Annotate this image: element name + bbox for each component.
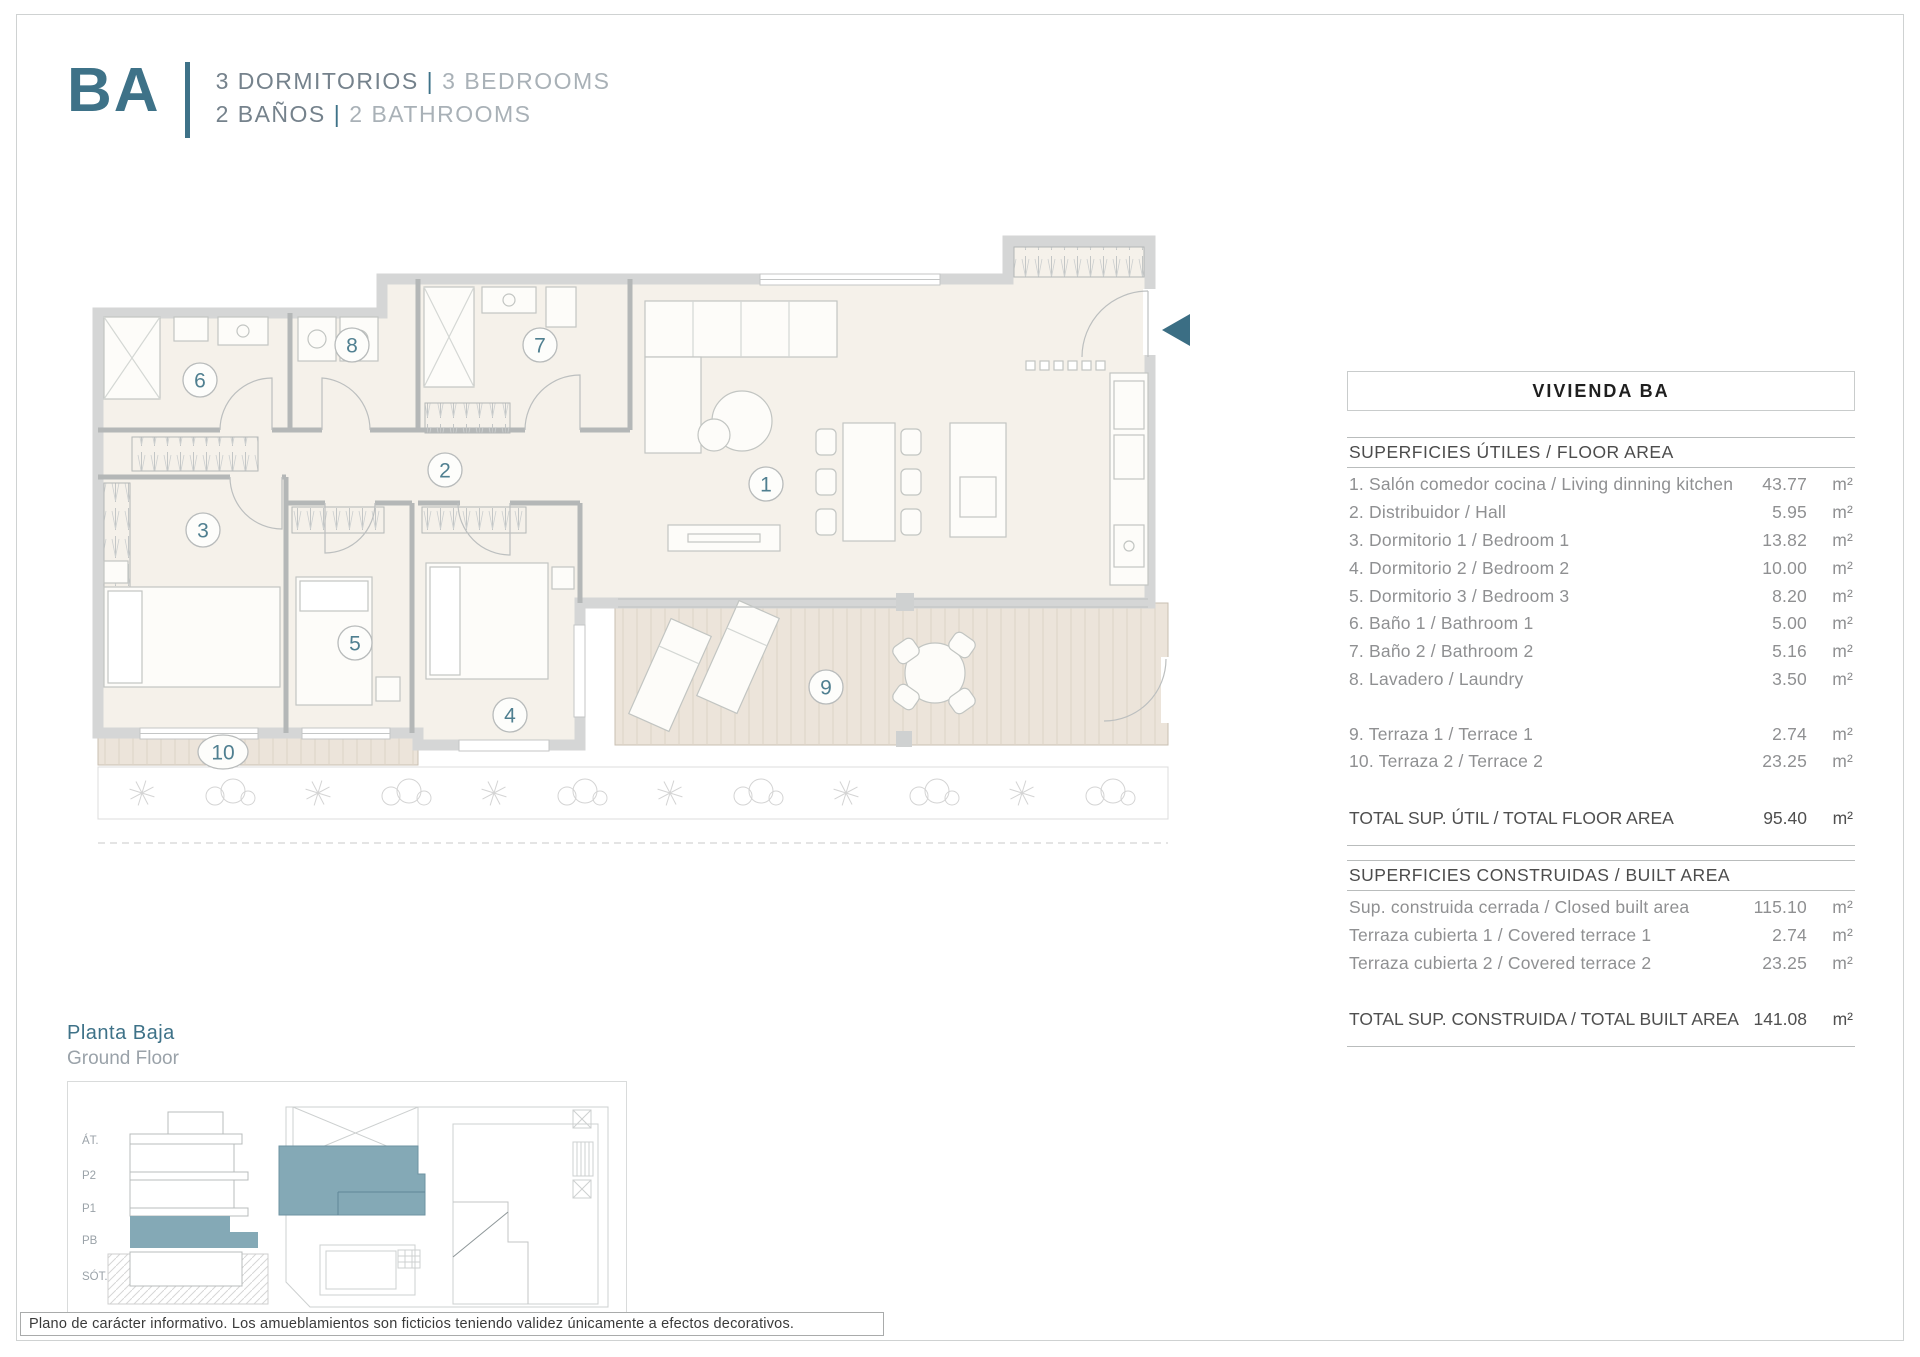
room-badge-7: 7 <box>523 328 557 362</box>
svg-text:PB: PB <box>82 1235 98 1247</box>
room-badge-5: 5 <box>338 626 372 660</box>
section-diagram: ÁT.P2P1PBSÓT. <box>82 1112 268 1304</box>
pipe-separator: | <box>326 101 349 127</box>
floor-label-en: Ground Floor <box>67 1048 179 1070</box>
area-row: 8. Lavadero / Laundry3.50m² <box>1347 665 1855 693</box>
header-divider <box>185 62 190 138</box>
svg-text:ÁT.: ÁT. <box>82 1134 99 1147</box>
total-floor-area-row: TOTAL SUP. ÚTIL / TOTAL FLOOR AREA 95.40… <box>1347 806 1855 831</box>
area-row: Terraza cubierta 2 / Covered terrace 223… <box>1347 949 1855 977</box>
svg-text:4: 4 <box>504 705 516 728</box>
floor-plan: 12345678910 <box>70 225 1190 855</box>
floor-plan-svg: 12345678910 <box>70 225 1190 855</box>
garden-strip <box>98 767 1168 843</box>
area-table-panel: VIVIENDA BA SUPERFICIES ÚTILES / FLOOR A… <box>1347 371 1855 1047</box>
room-badge-8: 8 <box>335 328 369 362</box>
terrace-9-deck <box>615 603 1168 745</box>
terrace-rows: 9. Terraza 1 / Terrace 12.74m²10. Terraz… <box>1347 717 1855 776</box>
total-floor-label: TOTAL SUP. ÚTIL / TOTAL FLOOR AREA <box>1349 808 1741 829</box>
svg-text:9: 9 <box>820 677 832 700</box>
location-diagram-box: ÁT.P2P1PBSÓT. <box>67 1081 627 1318</box>
section-divider <box>1347 1046 1855 1047</box>
svg-text:5: 5 <box>349 633 361 656</box>
svg-text:3: 3 <box>197 520 209 543</box>
location-diagram-svg: ÁT.P2P1PBSÓT. <box>68 1082 626 1317</box>
entrance-arrow <box>1162 310 1190 350</box>
terrace-10-deck <box>98 737 418 765</box>
disclaimer: Plano de carácter informativo. Los amueb… <box>20 1312 884 1336</box>
total-built-unit: m² <box>1807 1009 1853 1030</box>
svg-text:6: 6 <box>194 370 206 393</box>
room-badge-3: 3 <box>186 513 220 547</box>
area-row: 1. Salón comedor cocina / Living dinning… <box>1347 471 1855 499</box>
built-area-rows: Sup. construida cerrada / Closed built a… <box>1347 891 1855 977</box>
floor-area-heading: SUPERFICIES ÚTILES / FLOOR AREA <box>1347 437 1855 468</box>
rows-gap <box>1347 693 1855 717</box>
room-badge-10: 10 <box>198 735 248 769</box>
total-built-area-row: TOTAL SUP. CONSTRUIDA / TOTAL BUILT AREA… <box>1347 1007 1855 1032</box>
svg-text:1: 1 <box>760 474 772 497</box>
room-badge-9: 9 <box>809 670 843 704</box>
plan-sheet-page: BA 3 DORMITORIOS|3 BEDROOMS 2 BAÑOS|2 BA… <box>0 0 1920 1357</box>
area-row: 9. Terraza 1 / Terrace 12.74m² <box>1347 720 1855 748</box>
svg-text:8: 8 <box>346 335 358 358</box>
pipe-separator: | <box>419 68 442 94</box>
svg-text:P2: P2 <box>82 1170 96 1182</box>
area-row: 10. Terraza 2 / Terrace 223.25m² <box>1347 748 1855 776</box>
area-row: 4. Dormitorio 2 / Bedroom 210.00m² <box>1347 554 1855 582</box>
area-row: 2. Distribuidor / Hall5.95m² <box>1347 499 1855 527</box>
room-badge-6: 6 <box>183 363 217 397</box>
bathrooms-line: 2 BAÑOS|2 BATHROOMS <box>216 101 611 128</box>
area-row: 5. Dormitorio 3 / Bedroom 38.20m² <box>1347 582 1855 610</box>
area-row: 6. Baño 1 / Bathroom 15.00m² <box>1347 610 1855 638</box>
panel-title: VIVIENDA BA <box>1347 371 1855 411</box>
built-area-heading: SUPERFICIES CONSTRUIDAS / BUILT AREA <box>1347 860 1855 891</box>
siteplan-diagram <box>279 1107 608 1307</box>
svg-text:2: 2 <box>439 460 451 483</box>
bedrooms-line: 3 DORMITORIOS|3 BEDROOMS <box>216 68 611 95</box>
area-row: 3. Dormitorio 1 / Bedroom 113.82m² <box>1347 527 1855 555</box>
total-floor-value: 95.40 <box>1741 808 1807 829</box>
svg-text:P1: P1 <box>82 1203 96 1215</box>
floor-label-es: Planta Baja <box>67 1022 179 1045</box>
bedrooms-es: 3 DORMITORIOS <box>216 68 419 94</box>
total-built-label: TOTAL SUP. CONSTRUIDA / TOTAL BUILT AREA <box>1349 1009 1741 1030</box>
area-row: 7. Baño 2 / Bathroom 25.16m² <box>1347 638 1855 666</box>
room-badge-1: 1 <box>749 467 783 501</box>
svg-text:7: 7 <box>534 335 546 358</box>
section-divider <box>1347 845 1855 846</box>
area-row: Terraza cubierta 1 / Covered terrace 12.… <box>1347 922 1855 950</box>
total-built-value: 141.08 <box>1741 1009 1807 1030</box>
header: BA 3 DORMITORIOS|3 BEDROOMS 2 BAÑOS|2 BA… <box>67 62 611 138</box>
room-badge-4: 4 <box>493 698 527 732</box>
svg-text:10: 10 <box>211 742 234 765</box>
unit-code: BA <box>67 62 161 121</box>
area-row: Sup. construida cerrada / Closed built a… <box>1347 894 1855 922</box>
floor-label: Planta Baja Ground Floor <box>67 1022 179 1070</box>
total-floor-unit: m² <box>1807 808 1853 829</box>
room-badge-2: 2 <box>428 453 462 487</box>
bedrooms-en: 3 BEDROOMS <box>442 68 610 94</box>
built-area-section: SUPERFICIES CONSTRUIDAS / BUILT AREA Sup… <box>1347 860 1855 1047</box>
floor-area-section: SUPERFICIES ÚTILES / FLOOR AREA 1. Salón… <box>1347 437 1855 846</box>
bathrooms-en: 2 BATHROOMS <box>349 101 531 127</box>
header-subtitle: 3 DORMITORIOS|3 BEDROOMS 2 BAÑOS|2 BATHR… <box>216 62 611 134</box>
floor-area-rows: 1. Salón comedor cocina / Living dinning… <box>1347 468 1855 693</box>
svg-text:SÓT.: SÓT. <box>82 1270 108 1283</box>
bathrooms-es: 2 BAÑOS <box>216 101 326 127</box>
